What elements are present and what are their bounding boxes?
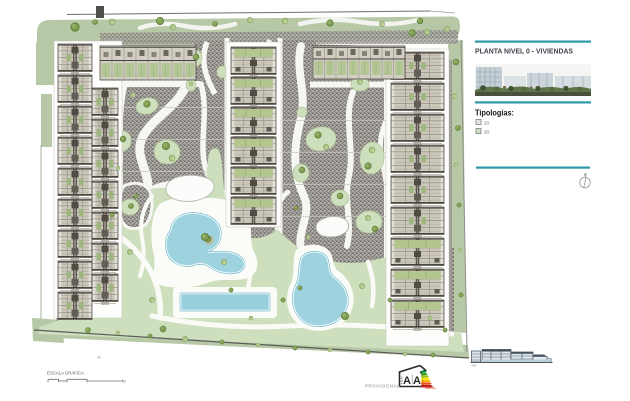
- svg-text:NM: NM: [472, 364, 477, 368]
- svg-text:PLANTA NIVEL 0 - VIVIENDAS: PLANTA NIVEL 0 - VIVIENDAS: [475, 47, 573, 56]
- svg-text:4: 4: [124, 380, 126, 384]
- svg-text:PROVISIONAL: PROVISIONAL: [365, 384, 400, 389]
- svg-text:4x: 4x: [97, 356, 101, 360]
- svg-text:ESCALA GRÁFICA: ESCALA GRÁFICA: [47, 370, 84, 375]
- svg-text:Tipologías:: Tipologías:: [475, 109, 514, 118]
- svg-text:A: A: [413, 375, 421, 387]
- svg-text:2D: 2D: [484, 120, 490, 125]
- svg-text:3D: 3D: [484, 129, 490, 134]
- svg-text:A: A: [403, 375, 411, 387]
